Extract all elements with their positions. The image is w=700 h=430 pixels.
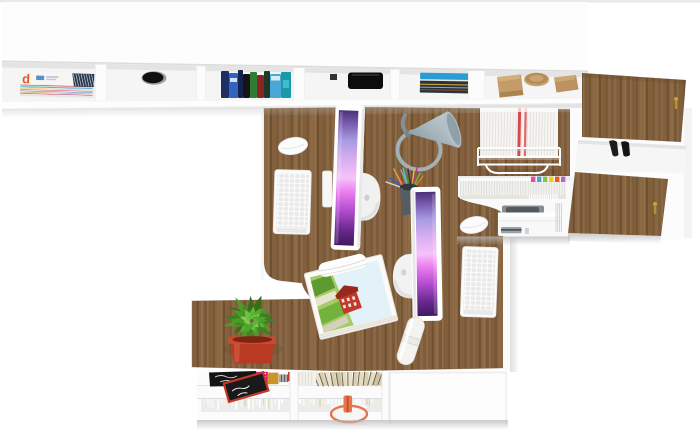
svg-text:d: d bbox=[22, 71, 30, 86]
